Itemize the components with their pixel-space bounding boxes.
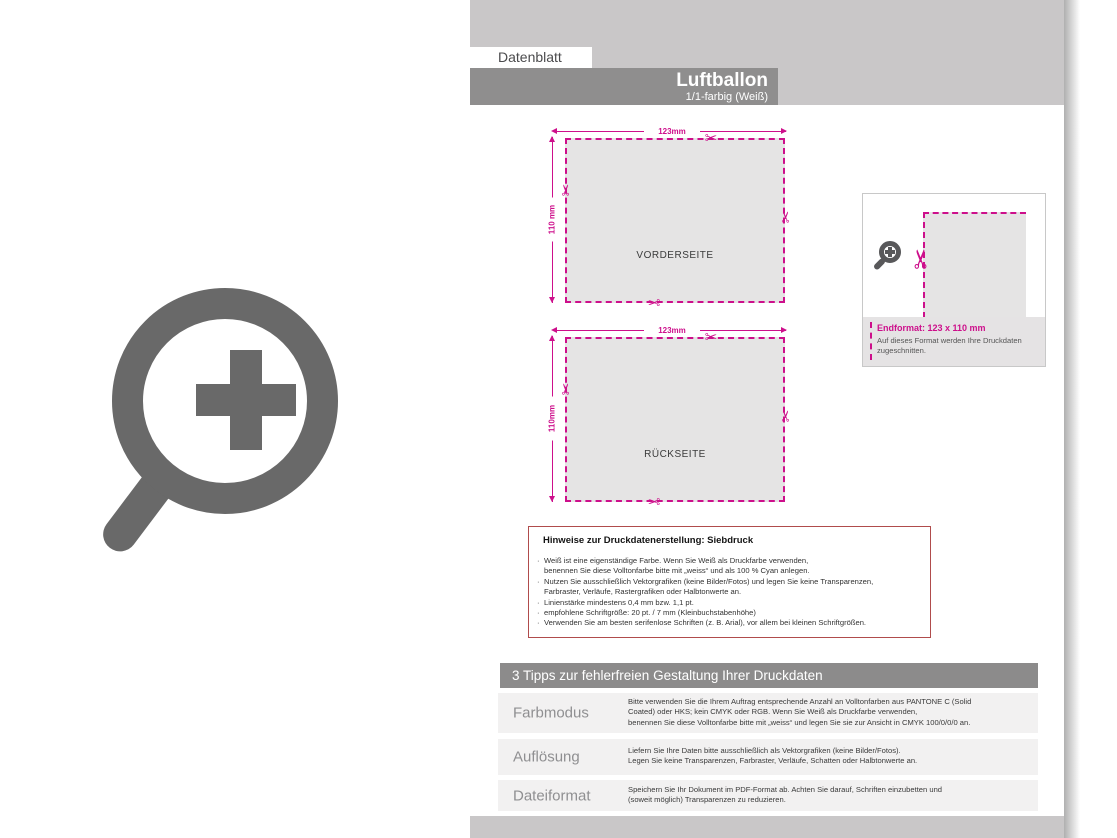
page-bottom-band bbox=[470, 816, 1064, 838]
endformat-title: Endformat: 123 x 110 mm bbox=[877, 323, 986, 333]
front-height-label: 110 mm bbox=[547, 198, 558, 242]
hinweise-list: · Weiß ist eine eigenständige Farbe. Wen… bbox=[537, 556, 925, 629]
list-item: · Nutzen Sie ausschließlich Vektorgrafik… bbox=[537, 577, 925, 598]
hinweise-bullet-text: Nutzen Sie ausschließlich Vektorgrafiken… bbox=[544, 577, 873, 598]
hinweise-box: Hinweise zur Druckdatenerstellung: Siebd… bbox=[528, 526, 931, 638]
front-side-label: VORDERSEITE bbox=[567, 250, 783, 261]
bullet: · bbox=[537, 556, 544, 577]
row-text: Liefern Sie Ihre Daten bitte ausschließl… bbox=[628, 746, 1034, 767]
bullet: · bbox=[537, 577, 544, 598]
front-side-rect: VORDERSEITE bbox=[565, 138, 785, 303]
bullet: · bbox=[537, 618, 544, 628]
dim-arrow-up-icon bbox=[549, 335, 555, 341]
scissors-icon: ✂ bbox=[701, 327, 721, 347]
scissors-icon: ✂ bbox=[776, 406, 796, 426]
dim-arrow-left-icon bbox=[551, 128, 557, 134]
plus-icon bbox=[888, 247, 892, 257]
hinweise-bullet-text: empfohlene Schriftgröße: 20 pt. / 7 mm (… bbox=[544, 608, 756, 618]
dim-arrow-down-icon bbox=[549, 297, 555, 303]
dim-arrow-up-icon bbox=[549, 136, 555, 142]
endformat-box: ✂ Endformat: 123 x 110 mm Auf dieses For… bbox=[862, 193, 1046, 367]
zoom-icon-small bbox=[873, 241, 903, 271]
front-width-label: 123mm bbox=[644, 126, 700, 137]
list-item: · Linienstärke mindestens 0,4 mm bzw. 1,… bbox=[537, 598, 925, 608]
hinweise-bullet-text: Verwenden Sie am besten serifenlose Schr… bbox=[544, 618, 866, 628]
row-label-dateiformat: Dateiformat bbox=[513, 787, 591, 804]
page-title: Luftballon bbox=[470, 71, 768, 91]
page-subtitle: 1/1-farbig (Weiß) bbox=[470, 91, 768, 103]
plus-icon bbox=[230, 350, 262, 450]
tipps-header: 3 Tipps zur fehlerfreien Gestaltung Ihre… bbox=[500, 663, 1038, 688]
scissors-icon: ✂ bbox=[644, 492, 664, 512]
hinweise-bullet-text: Linienstärke mindestens 0,4 mm bzw. 1,1 … bbox=[544, 598, 694, 608]
list-item: · Verwenden Sie am besten serifenlose Sc… bbox=[537, 618, 925, 628]
row-text: Bitte verwenden Sie die Ihrem Auftrag en… bbox=[628, 697, 1034, 728]
endformat-text: Auf dieses Format werden Ihre Druckdaten… bbox=[877, 336, 1022, 356]
endformat-info: Endformat: 123 x 110 mm Auf dieses Forma… bbox=[863, 317, 1045, 366]
datasheet-preview: Datenblatt Luftballon 1/1-farbig (Weiß) … bbox=[0, 0, 1117, 838]
dim-arrow-right-icon bbox=[781, 327, 787, 333]
row-label-farbmodus: Farbmodus bbox=[513, 705, 589, 722]
bullet: · bbox=[537, 598, 544, 608]
row-text: Speichern Sie Ihr Dokument im PDF-Format… bbox=[628, 785, 1034, 806]
scissors-icon: ✂ bbox=[556, 180, 576, 200]
image-preview-panel bbox=[0, 0, 470, 838]
back-side-rect: RÜCKSEITE bbox=[565, 337, 785, 502]
scissors-icon: ✂ bbox=[644, 293, 664, 313]
back-height-label: 110mm bbox=[547, 397, 558, 441]
cut-mark-dash bbox=[870, 322, 872, 360]
table-row: Farbmodus Bitte verwenden Sie die Ihrem … bbox=[498, 693, 1038, 733]
dim-arrow-left-icon bbox=[551, 327, 557, 333]
hinweise-bullet-text: Weiß ist eine eigenständige Farbe. Wenn … bbox=[544, 556, 810, 577]
back-side-label: RÜCKSEITE bbox=[567, 449, 783, 460]
scissors-icon: ✂ bbox=[701, 128, 721, 148]
dim-arrow-down-icon bbox=[549, 496, 555, 502]
row-label-aufloesung: Auflösung bbox=[513, 749, 580, 766]
scissors-icon: ✂ bbox=[556, 379, 576, 399]
dim-arrow-right-icon bbox=[781, 128, 787, 134]
scissors-icon: ✂ bbox=[905, 243, 939, 275]
scissors-icon: ✂ bbox=[776, 207, 796, 227]
title-bar: Luftballon 1/1-farbig (Weiß) bbox=[470, 68, 778, 105]
page-shadow bbox=[1064, 0, 1080, 838]
list-item: · empfohlene Schriftgröße: 20 pt. / 7 mm… bbox=[537, 608, 925, 618]
bullet: · bbox=[537, 608, 544, 618]
list-item: · Weiß ist eine eigenständige Farbe. Wen… bbox=[537, 556, 925, 577]
hinweise-title: Hinweise zur Druckdatenerstellung: Siebd… bbox=[543, 535, 753, 546]
datenblatt-tab: Datenblatt bbox=[470, 47, 592, 68]
back-width-label: 123mm bbox=[644, 325, 700, 336]
table-row: Dateiformat Speichern Sie Ihr Dokument i… bbox=[498, 780, 1038, 811]
table-row: Auflösung Liefern Sie Ihre Daten bitte a… bbox=[498, 739, 1038, 775]
